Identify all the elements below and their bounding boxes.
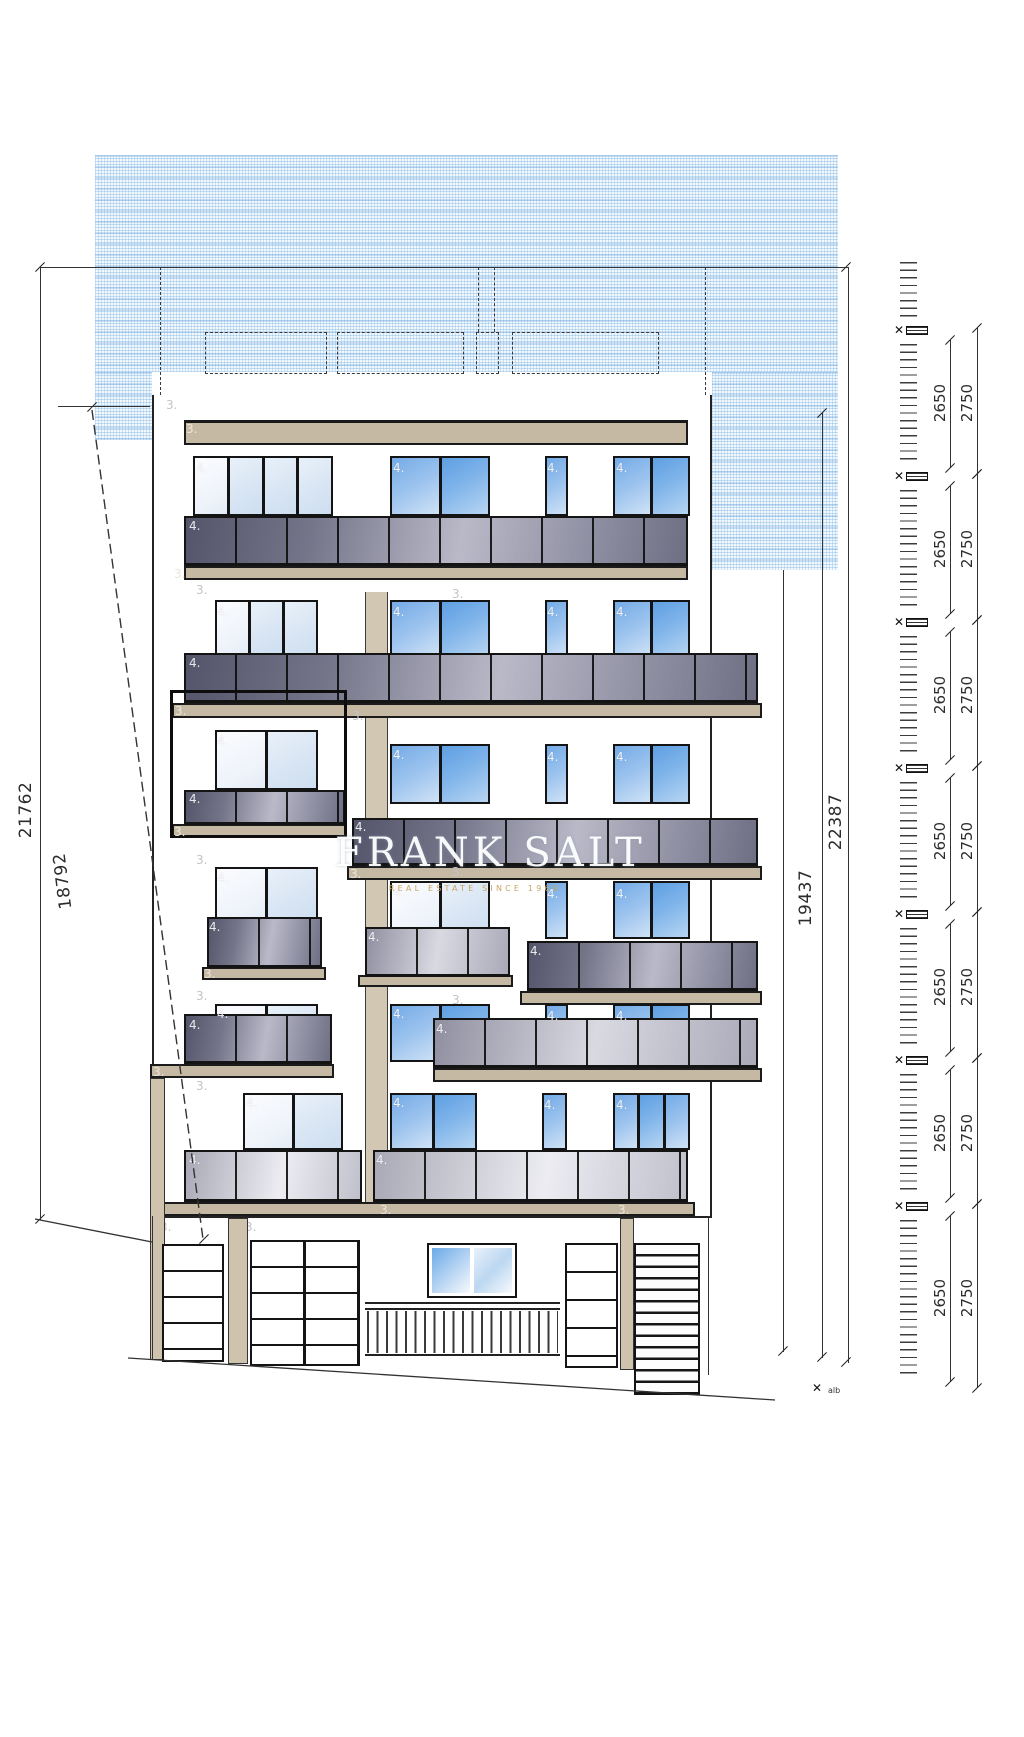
ladder-dim-line-pitch [977, 766, 978, 912]
ladder-floor-pitch: 2750 [958, 676, 976, 714]
ladder-floor-pitch: 2750 [958, 1279, 976, 1317]
slab-section-symbol: ✕ [894, 614, 928, 630]
ladder-dim-line-pitch [977, 474, 978, 620]
ladder-ruler [900, 344, 917, 464]
ladder-base-symbol: ✕ [812, 1380, 822, 1396]
ladder-dim-line-clear [950, 778, 951, 906]
slab-section-symbol: ✕ [894, 1198, 928, 1214]
ladder-clear-height: 2650 [931, 384, 949, 422]
ladder-ruler [900, 490, 917, 610]
slab-hatch-bar [906, 326, 928, 335]
slab-x-mark: ✕ [894, 1200, 904, 1212]
slab-section-symbol: ✕ [894, 906, 928, 922]
slab-x-mark: ✕ [894, 908, 904, 920]
ladder-dim-line-clear [950, 924, 951, 1052]
slab-hatch-bar [906, 1056, 928, 1065]
ladder-dim-line-clear [950, 1070, 951, 1198]
slab-hatch-bar [906, 472, 928, 481]
slab-x-mark: ✕ [894, 762, 904, 774]
ladder-ruler [900, 636, 917, 756]
elevation-drawing: 3.3.4.4.4.4.4.3.3.3.4.4.4.4.4.3.3.4.4.4.… [0, 0, 1024, 1737]
slab-hatch-bar [906, 1202, 928, 1211]
ladder-floor-pitch: 2750 [958, 530, 976, 568]
ladder-clear-height: 2650 [931, 1279, 949, 1317]
slab-x-mark: ✕ [894, 1054, 904, 1066]
ladder-dim-line-clear [950, 486, 951, 614]
slab-x-mark: ✕ [894, 470, 904, 482]
ladder-dim-line-pitch [977, 620, 978, 766]
slab-x-mark: ✕ [894, 616, 904, 628]
slab-section-symbol: ✕ [894, 760, 928, 776]
ladder-floor-pitch: 2750 [958, 822, 976, 860]
ladder-clear-height: 2650 [931, 530, 949, 568]
slab-hatch-bar [906, 764, 928, 773]
ladder-dim-line-pitch [977, 1204, 978, 1388]
ladder-dim-line-clear [950, 340, 951, 468]
ladder-ruler [900, 1074, 917, 1194]
ladder-dim-line-pitch [977, 912, 978, 1058]
base-x-mark: ✕ [812, 1382, 822, 1394]
ladder-ruler [900, 928, 917, 1048]
ladder-dim-line-clear [950, 1216, 951, 1382]
ladder-clear-height: 2650 [931, 676, 949, 714]
slab-section-symbol: ✕ [894, 322, 928, 338]
slab-section-symbol: ✕ [894, 1052, 928, 1068]
ladder-floor-pitch: 2750 [958, 384, 976, 422]
ladder-dim-line-clear [950, 632, 951, 760]
ladder-clear-height: 2650 [931, 1114, 949, 1152]
ladder-ruler [900, 262, 917, 320]
ladder-floor-pitch: 2750 [958, 1114, 976, 1152]
ladder-dim-line-pitch [977, 1058, 978, 1204]
slab-section-symbol: ✕ [894, 468, 928, 484]
ladder-ruler [900, 782, 917, 902]
storey-height-ladder: ✕26502750✕26502750✕26502750✕26502750✕265… [0, 0, 1024, 1737]
ladder-ruler [900, 1220, 917, 1378]
ladder-dim-line-pitch [977, 328, 978, 474]
slab-hatch-bar [906, 618, 928, 627]
slab-x-mark: ✕ [894, 324, 904, 336]
ladder-clear-height: 2650 [931, 822, 949, 860]
ladder-clear-height: 2650 [931, 968, 949, 1006]
ladder-base-note: alb [828, 1386, 840, 1395]
ladder-floor-pitch: 2750 [958, 968, 976, 1006]
slab-hatch-bar [906, 910, 928, 919]
